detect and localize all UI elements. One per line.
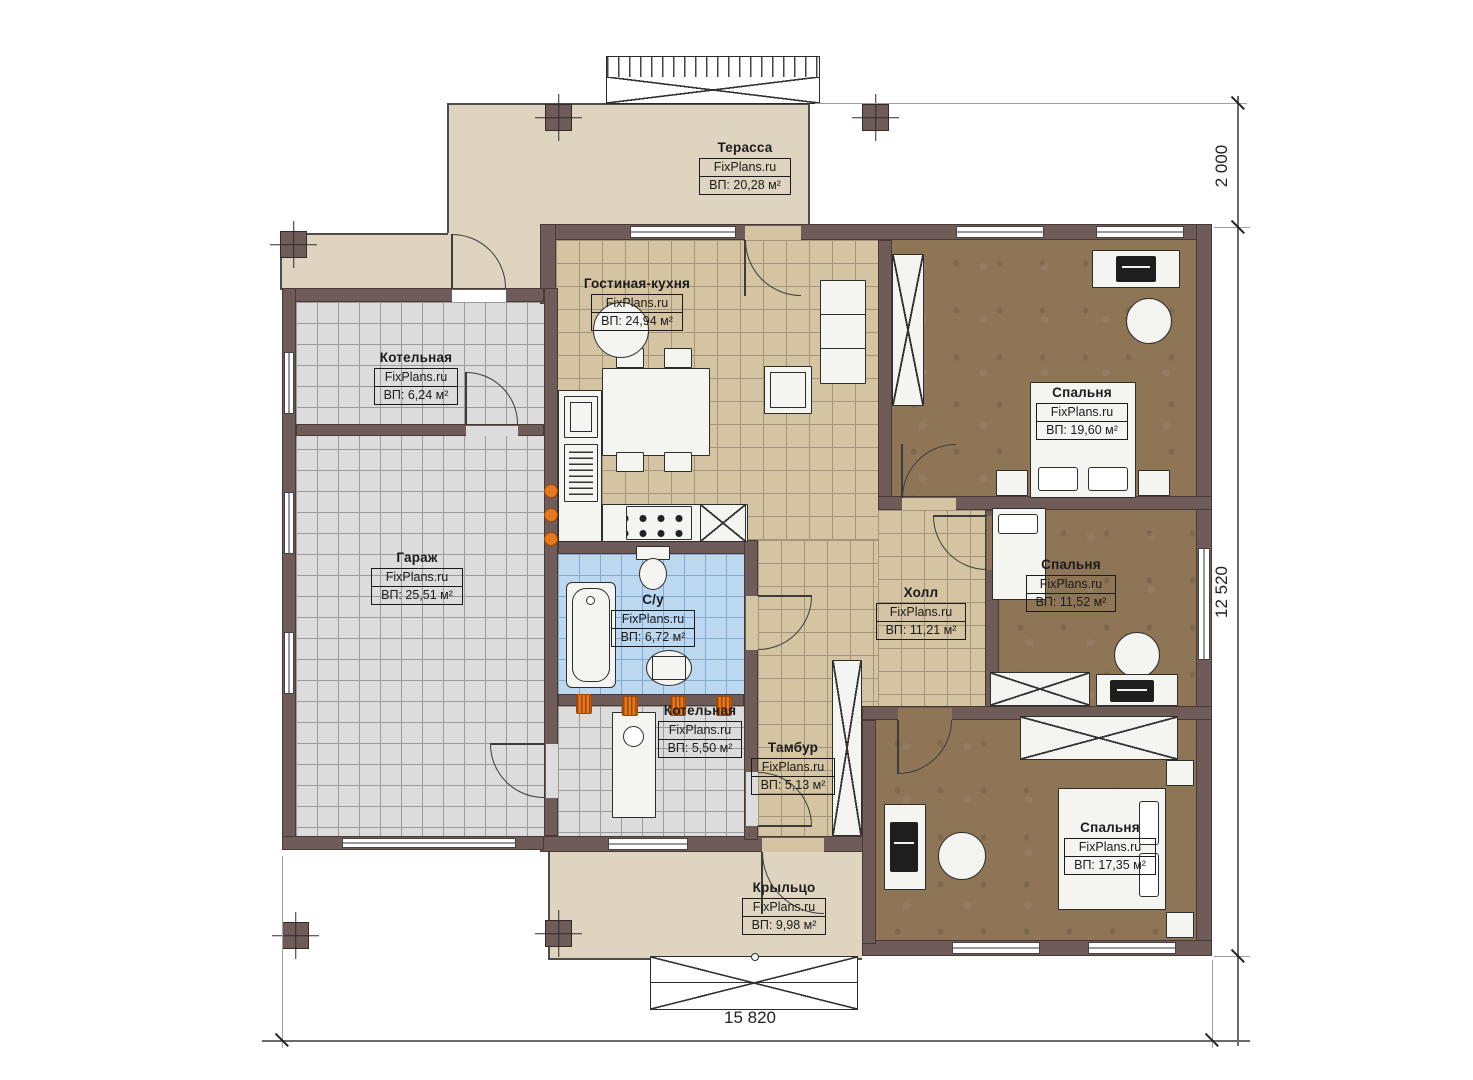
door-opening [546, 744, 558, 798]
door-leaf [897, 720, 899, 774]
room-name: Гараж [332, 550, 502, 565]
column-marker [545, 920, 572, 947]
room-name: С/у [568, 592, 738, 607]
watermark: FixPlans.ru [1065, 839, 1155, 857]
nightstand [1138, 470, 1170, 496]
pillow [1088, 467, 1128, 491]
window [1088, 942, 1176, 954]
sofa [820, 280, 866, 384]
stair-treads [607, 57, 819, 77]
room-info-box: FixPlans.ru ВП: 11,52 м² [1026, 575, 1117, 612]
room-area: ВП: 6,72 м² [612, 629, 695, 646]
room-label-tambour: Тамбур FixPlans.ru ВП: 5,13 м² [708, 740, 878, 795]
room-info-box: FixPlans.ru ВП: 24,94 м² [591, 294, 683, 331]
chair [616, 452, 644, 472]
watermark: FixPlans.ru [592, 295, 682, 313]
watermark: FixPlans.ru [659, 722, 742, 740]
door-leaf [758, 825, 812, 827]
door-leaf [451, 234, 453, 288]
room-area: ВП: 19,60 м² [1037, 422, 1127, 439]
pipe-outlet [544, 508, 558, 522]
terrace-outline [447, 103, 449, 233]
dishwasher [564, 444, 598, 502]
dimension-value-2000: 2 000 [1212, 126, 1232, 206]
room-label-terrace: Терасса FixPlans.ru ВП: 20,28 м² [660, 140, 830, 195]
extension-line [282, 856, 283, 1048]
window [608, 838, 688, 850]
door-leaf [901, 444, 903, 498]
room-name: Спальня [997, 385, 1167, 400]
room-info-box: FixPlans.ru ВП: 5,13 м² [751, 758, 836, 795]
room-label-bedroom-3: Спальня FixPlans.ru ВП: 17,35 м² [1025, 820, 1195, 875]
room-area: ВП: 5,13 м² [752, 777, 835, 794]
door-leaf [490, 743, 544, 745]
room-area: ВП: 11,52 м² [1027, 594, 1116, 611]
dining-table [602, 368, 710, 456]
stair-marker [751, 953, 759, 961]
printer [1110, 680, 1154, 702]
dimension-line-vertical [1237, 96, 1239, 1046]
room-area: ВП: 9,98 м² [743, 917, 826, 934]
room-area: ВП: 25,51 м² [372, 587, 462, 604]
watermark: FixPlans.ru [375, 369, 458, 387]
room-info-box: FixPlans.ru ВП: 11,21 м² [876, 603, 967, 640]
door-opening [746, 596, 758, 650]
wardrobe [1020, 716, 1178, 760]
sofa-cushion-line [821, 314, 865, 315]
room-label-hall: Холл FixPlans.ru ВП: 11,21 м² [836, 585, 1006, 640]
window [1096, 226, 1184, 238]
window [342, 838, 516, 848]
room-info-box: FixPlans.ru ВП: 25,51 м² [371, 568, 463, 605]
porch-stairs [650, 956, 858, 1010]
chair [1114, 632, 1160, 678]
nightstand [1166, 912, 1194, 938]
door-leaf [758, 595, 812, 597]
room-name: Гостиная-кухня [552, 276, 722, 291]
toilet-bowl [639, 558, 667, 590]
room-label-bathroom: С/у FixPlans.ru ВП: 6,72 м² [568, 592, 738, 647]
room-area: ВП: 11,21 м² [877, 622, 966, 639]
room-name: Тамбур [708, 740, 878, 755]
door-opening [902, 498, 956, 510]
watermark: FixPlans.ru [743, 899, 826, 917]
window [956, 226, 1044, 238]
dimension-value-12520: 12 520 [1212, 547, 1232, 637]
room-label-porch: Крыльцо FixPlans.ru ВП: 9,98 м² [699, 880, 869, 935]
watermark: FixPlans.ru [612, 611, 695, 629]
watermark: FixPlans.ru [700, 159, 790, 177]
armchair [764, 366, 812, 414]
window [630, 226, 736, 238]
chair [938, 832, 986, 880]
terrace-stairs [606, 56, 820, 104]
extension-line [1212, 960, 1213, 1048]
room-info-box: FixPlans.ru ВП: 6,24 м² [374, 368, 459, 405]
printer [1116, 256, 1156, 282]
watermark: FixPlans.ru [1027, 576, 1116, 594]
chair [1126, 298, 1172, 344]
dimension-line-horizontal [262, 1040, 1250, 1042]
watermark: FixPlans.ru [752, 759, 835, 777]
room-name: Спальня [1025, 820, 1195, 835]
pipe-outlet [544, 484, 558, 498]
room-info-box: FixPlans.ru ВП: 6,72 м² [611, 610, 696, 647]
stove [626, 506, 692, 540]
room-name: Холл [836, 585, 1006, 600]
room-info-box: FixPlans.ru ВП: 9,98 м² [742, 898, 827, 935]
room-name: Спальня [986, 557, 1156, 572]
room-area: ВП: 24,94 м² [592, 313, 682, 330]
stair-direction [607, 77, 819, 103]
room-info-box: FixPlans.ru ВП: 17,35 м² [1064, 838, 1156, 875]
extension-line [815, 103, 1247, 104]
printer [890, 822, 918, 872]
watermark: FixPlans.ru [877, 604, 966, 622]
door-opening [745, 226, 801, 240]
window [284, 632, 294, 694]
door-opening [898, 708, 952, 720]
room-name: Котельная [615, 703, 785, 718]
kitchen-sink [564, 396, 598, 438]
extension-line [1214, 227, 1250, 228]
nightstand [1166, 760, 1194, 786]
room-label-living-kitchen: Гостиная-кухня FixPlans.ru ВП: 24,94 м² [552, 276, 722, 331]
radiator [576, 694, 592, 714]
door-opening [452, 290, 506, 302]
room-area: ВП: 20,28 м² [700, 177, 790, 194]
sink [646, 650, 692, 686]
sofa-cushion-line [821, 348, 865, 349]
room-info-box: FixPlans.ru ВП: 20,28 м² [699, 158, 791, 195]
wall-bedroom1-left [878, 240, 892, 500]
stair-direction [651, 957, 857, 1009]
room-label-bedroom-1: Спальня FixPlans.ru ВП: 19,60 м² [997, 385, 1167, 440]
window [952, 942, 1040, 954]
pillow [998, 514, 1038, 534]
extension-line [1214, 956, 1250, 957]
door-leaf [744, 240, 746, 296]
window [284, 352, 294, 414]
door-opening [466, 426, 518, 436]
wardrobe [892, 254, 924, 406]
column-marker [282, 922, 309, 949]
chair [664, 452, 692, 472]
room-name: Котельная [331, 350, 501, 365]
room-area: ВП: 17,35 м² [1065, 857, 1155, 874]
chair [664, 348, 692, 368]
watermark: FixPlans.ru [1037, 404, 1127, 422]
room-area: ВП: 6,24 м² [375, 387, 458, 404]
column-marker [862, 104, 889, 131]
wardrobe [990, 672, 1090, 706]
room-name: Крыльцо [699, 880, 869, 895]
fridge [700, 504, 746, 542]
dimension-value-15820: 15 820 [690, 1008, 810, 1028]
room-info-box: FixPlans.ru ВП: 19,60 м² [1036, 403, 1128, 440]
pipe-outlet [544, 532, 558, 546]
column-marker [545, 104, 572, 131]
window [1198, 548, 1210, 660]
window [284, 492, 294, 554]
nightstand [996, 470, 1028, 496]
room-name: Терасса [660, 140, 830, 155]
floor-plan: Терасса FixPlans.ru ВП: 20,28 м² Гостина… [0, 0, 1473, 1080]
door-leaf [933, 515, 987, 517]
watermark: FixPlans.ru [372, 569, 462, 587]
column-marker [280, 231, 307, 258]
room-label-bedroom-2: Спальня FixPlans.ru ВП: 11,52 м² [986, 557, 1156, 612]
door-opening [762, 838, 824, 852]
room-label-boiler-top: Котельная FixPlans.ru ВП: 6,24 м² [331, 350, 501, 405]
room-label-garage: Гараж FixPlans.ru ВП: 25,51 м² [332, 550, 502, 605]
pillow [1038, 467, 1078, 491]
